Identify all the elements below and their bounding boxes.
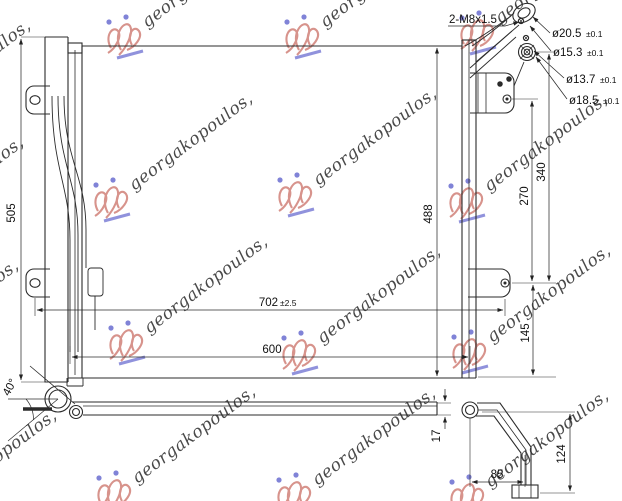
watermark-text: georgakopoulos, <box>0 256 23 362</box>
dim-124-label: 124 <box>556 444 568 464</box>
dim-505-label: 505 <box>6 203 18 222</box>
dim-488-label: 488 <box>423 204 435 223</box>
dimension-labels: 2-M8x1.5 ø20.5 ±0.1 ø15.3 ±0.1 ø13.7 ±0.… <box>1 14 620 481</box>
callout-dia-15-3-label: ø15.3 <box>553 47 582 59</box>
left-pipes <box>52 96 103 386</box>
callout-thread-label: 2-M8x1.5 <box>449 14 497 26</box>
left-bracket-top <box>26 86 50 114</box>
dim-17 <box>437 389 451 429</box>
callout-dia-13-7-label: ø13.7 <box>566 74 595 86</box>
watermark-layer: georgakopoulos, georgakopoulos, georgako… <box>0 0 622 501</box>
dim-145-label: 145 <box>520 323 532 342</box>
dim-600-label: 600 <box>262 344 281 356</box>
dim-505 <box>21 37 45 382</box>
dim-40deg-label: 40° <box>1 377 20 398</box>
callout-dia-18-5-tol: ±0.1 <box>603 96 620 106</box>
right-bracket-top <box>470 73 514 113</box>
dimension-lines <box>8 17 575 493</box>
right-bracket-bottom <box>468 269 510 297</box>
technical-drawing-page: georgakopoulos, georgakopoulos, georgako… <box>0 0 622 501</box>
watermark-text: georgakopoulos, <box>0 406 61 501</box>
dim-270-label: 270 <box>519 186 531 205</box>
dim-340-label: 340 <box>536 162 548 181</box>
callout-dia-13-7-tol: ±0.1 <box>600 75 617 85</box>
callout-dia-20-5-tol: ±0.1 <box>586 29 603 39</box>
callout-dia-15-3-tol: ±0.1 <box>587 48 604 58</box>
dim-85-label: 85 <box>491 469 504 481</box>
dim-17-label: 17 <box>431 430 443 443</box>
watermark-text: georgakopoulos, <box>0 16 35 122</box>
dim-702-tol: ±2.5 <box>280 298 297 308</box>
fitting-bottom <box>519 35 536 60</box>
callout-dia-20-5-label: ø20.5 <box>552 28 581 40</box>
dim-702-label: 702 <box>259 297 278 309</box>
callout-dia-18-5-label: ø18.5 <box>569 95 598 107</box>
condenser-technical-drawing: georgakopoulos, georgakopoulos, georgako… <box>0 0 622 501</box>
left-bracket-bottom <box>26 269 50 297</box>
